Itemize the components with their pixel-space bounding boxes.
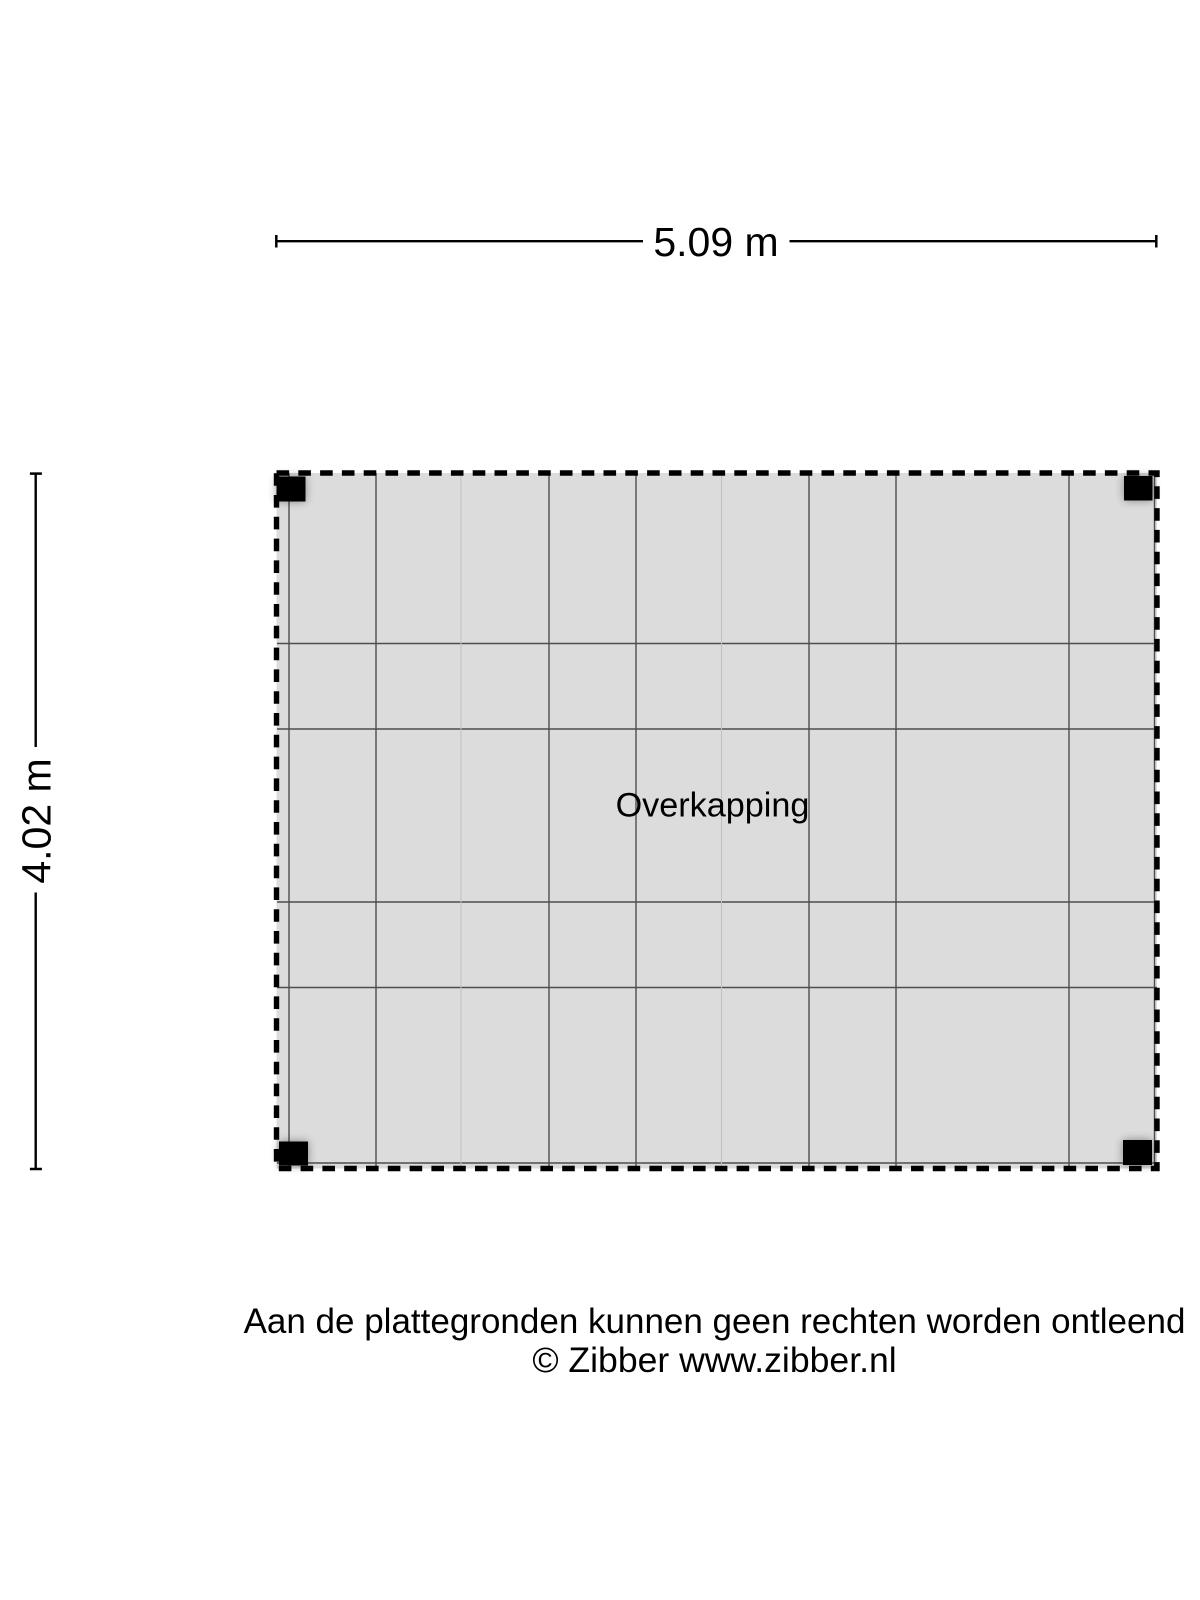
svg-text:4.02 m: 4.02 m [14, 758, 60, 883]
svg-text:Aan de plattegronden kunnen ge: Aan de plattegronden kunnen geen rechten… [244, 1302, 1186, 1341]
svg-text:5.09 m: 5.09 m [653, 219, 778, 265]
svg-text:© Zibber www.zibber.nl: © Zibber www.zibber.nl [532, 1340, 896, 1380]
svg-text:Overkapping: Overkapping [616, 786, 810, 824]
